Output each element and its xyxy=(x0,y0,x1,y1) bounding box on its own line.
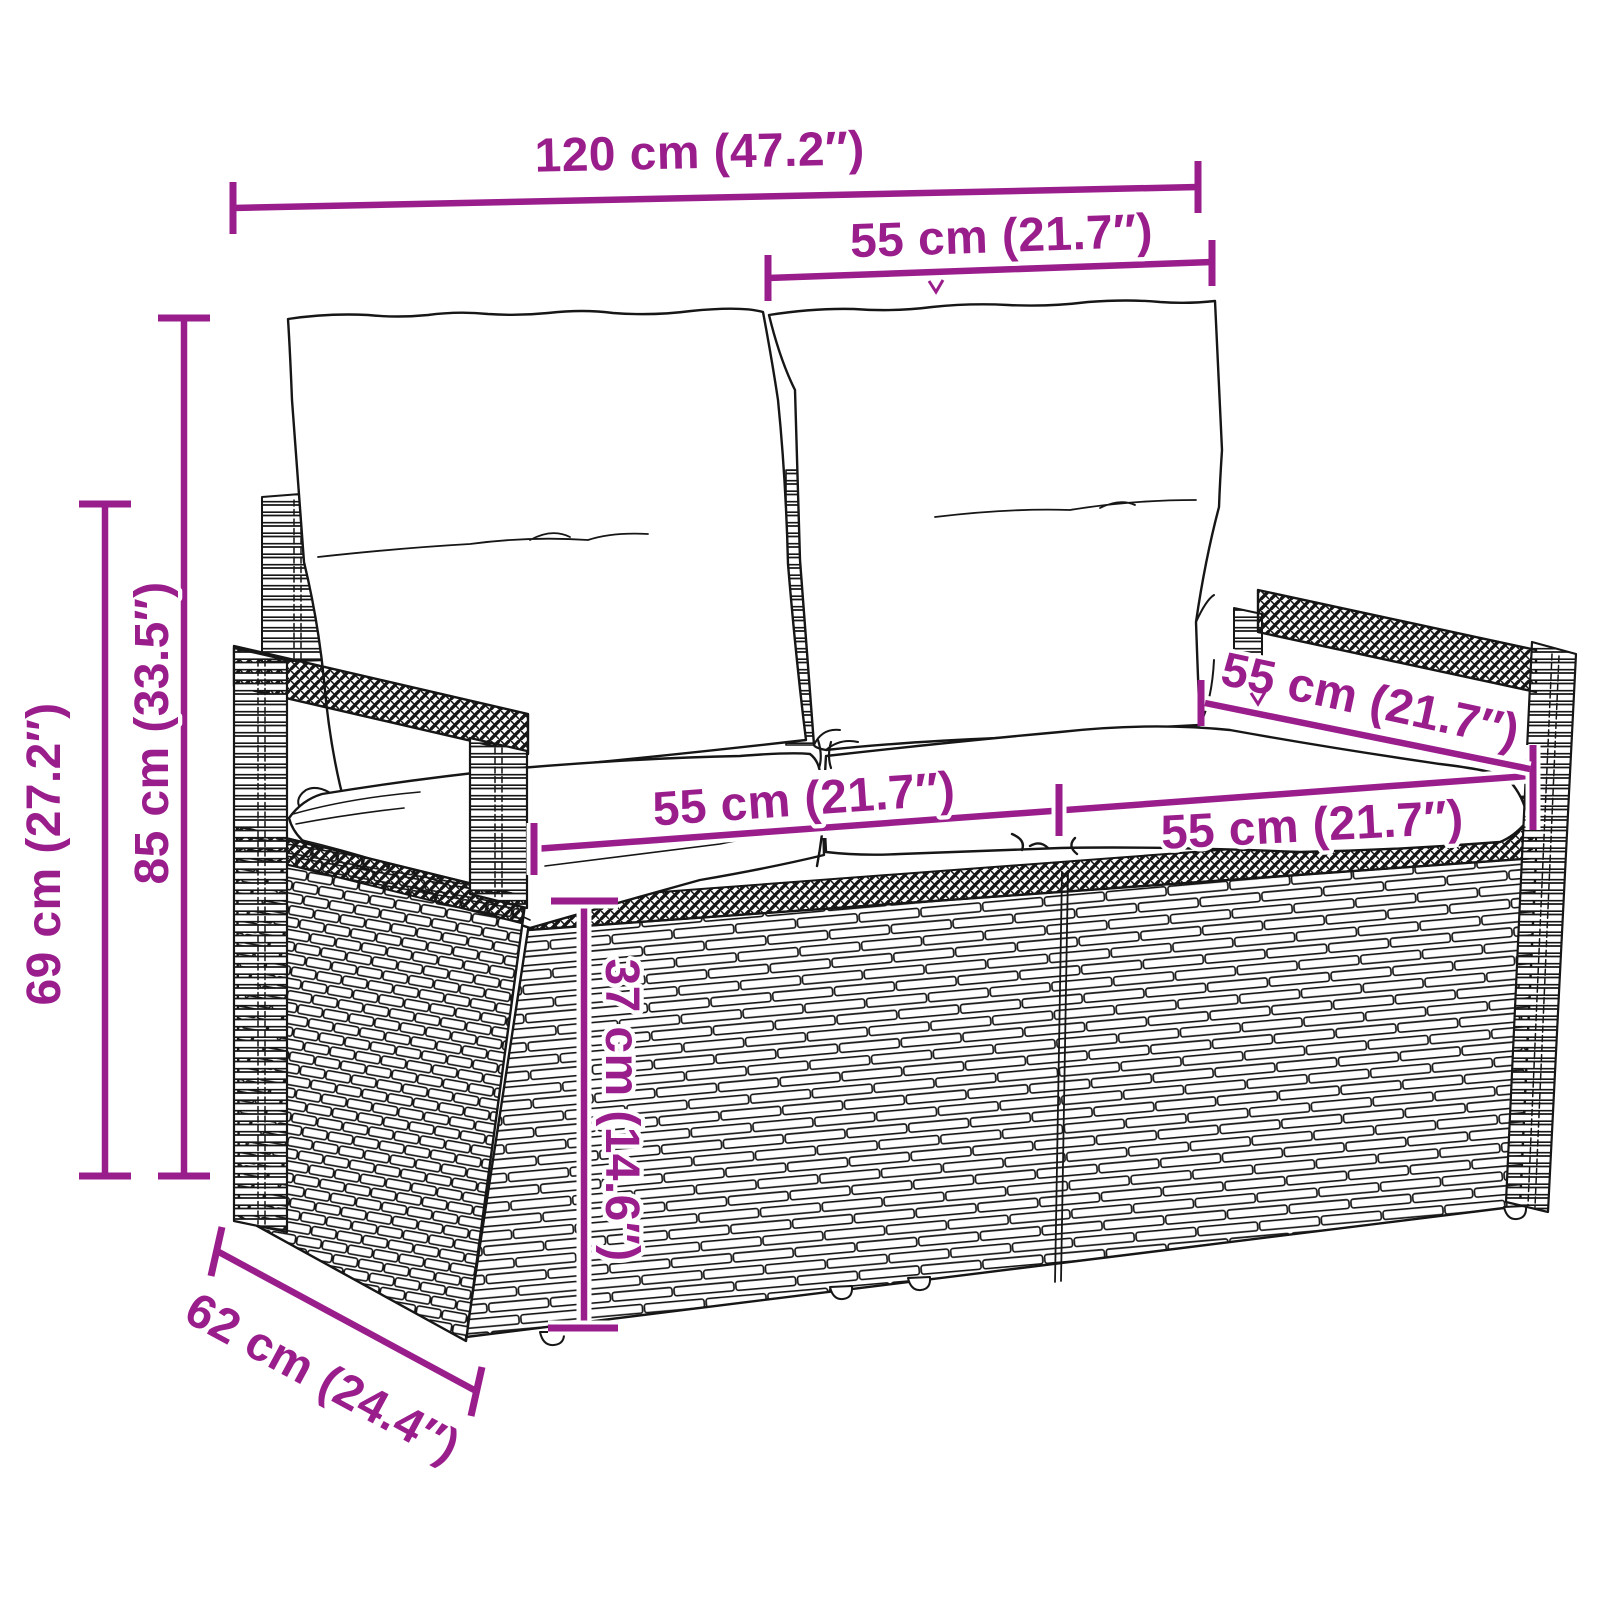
svg-text:37 cm (14.6″): 37 cm (14.6″) xyxy=(595,958,648,1261)
svg-text:85 cm (33.5″): 85 cm (33.5″) xyxy=(126,581,179,884)
svg-text:55 cm (21.7″): 55 cm (21.7″) xyxy=(849,205,1154,269)
svg-text:69 cm (27.2″): 69 cm (27.2″) xyxy=(18,702,71,1005)
svg-text:120 cm (47.2″): 120 cm (47.2″) xyxy=(534,122,865,182)
